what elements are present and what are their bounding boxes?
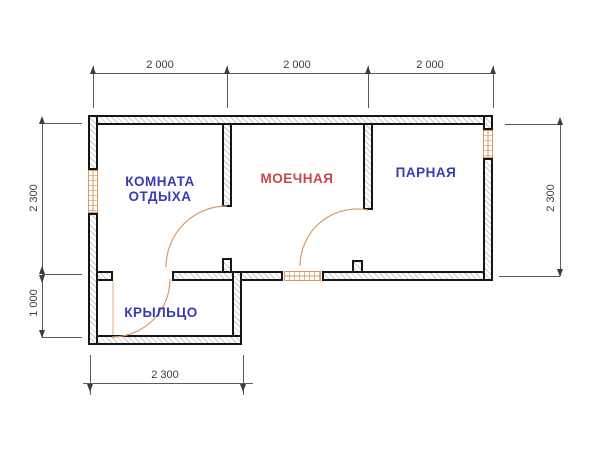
wall-mid-left [172, 271, 283, 281]
floor-plan: 2 000 2 000 2 000 2 300 1 000 2 300 2 30… [0, 0, 600, 450]
dim-label-left-lower: 1 000 [28, 273, 40, 333]
dim-label-bottom: 2 300 [125, 369, 205, 381]
room-label-washing: МОЕЧНАЯ [237, 171, 357, 186]
dim-ext-left-1 [42, 123, 82, 124]
wall-mid-right [322, 271, 493, 281]
room-label-steam: ПАРНАЯ [366, 165, 486, 180]
dim-ext-right-2 [499, 276, 560, 277]
wall-top [88, 115, 493, 125]
dim-label-top-1: 2 000 [120, 59, 200, 71]
dim-label-top-2: 2 000 [257, 59, 337, 71]
room-label-porch: КРЫЛЬЦО [100, 305, 222, 320]
wall-right-upper [483, 115, 493, 130]
dim-arrow [240, 384, 246, 392]
dim-line-left [42, 123, 43, 337]
window-right [483, 130, 493, 158]
dim-ext-left-2 [42, 274, 82, 275]
door-arc-washing-steam [300, 209, 368, 266]
dim-label-left-upper: 2 300 [28, 168, 40, 228]
window-mid [284, 271, 321, 281]
dim-arrow [224, 66, 230, 74]
wall-porch-right [232, 271, 242, 345]
wall-left-upper [88, 115, 98, 170]
door-arc-rest-washing [166, 206, 227, 267]
dim-line-right [560, 124, 561, 276]
dim-arrow [490, 66, 496, 74]
dim-arrow [87, 384, 93, 392]
dim-arrow [365, 66, 371, 74]
dim-ext-left-3 [42, 337, 82, 338]
wall-left-lower [88, 213, 98, 345]
dim-arrow [557, 269, 563, 277]
dim-arrow [90, 66, 96, 74]
room-label-rest-line2: ОТДЫХА [95, 189, 225, 204]
dim-line-bottom [83, 383, 253, 384]
room-label-rest-line1: КОМНАТА [95, 174, 225, 189]
dim-arrow [557, 117, 563, 125]
dim-ext-right-1 [505, 124, 560, 125]
dim-label-top-3: 2 000 [390, 59, 470, 71]
dim-label-right: 2 300 [545, 168, 557, 228]
dim-line-top [93, 73, 493, 74]
wall-porch-bottom [88, 335, 242, 345]
room-label-rest: КОМНАТА ОТДЫХА [95, 174, 225, 204]
dim-arrow [39, 116, 45, 124]
